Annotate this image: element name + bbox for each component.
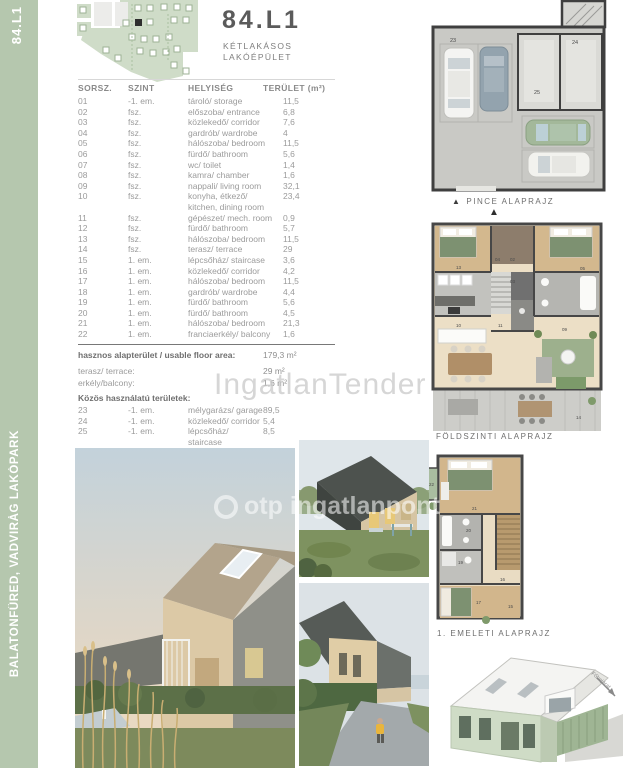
ground-floor-plan: 02 03 04 05 09 10 11 13 14 [430, 221, 605, 433]
row-level: fsz. [128, 138, 188, 149]
row-level: fsz. [128, 181, 188, 192]
page-title: 84.L1 [222, 6, 301, 35]
table-row: 04fsz.gardrób/ wardrobe4 [78, 128, 335, 139]
row-level: -1. em. [128, 405, 188, 416]
row-room: wc/ toilet [188, 160, 283, 171]
row-room: hálószoba/ bedroom [188, 138, 283, 149]
row-area: 4 [283, 128, 335, 139]
svg-text:03: 03 [510, 279, 516, 284]
table-row: 14fsz.terasz/ terrace29 [78, 244, 335, 255]
row-area: 23,4 [283, 191, 335, 212]
row-area: 32,1 [283, 181, 335, 192]
svg-text:11: 11 [498, 323, 503, 328]
row-area: 5,4 [263, 416, 280, 427]
row-room: gardrób/ wardrobe [188, 287, 283, 298]
table-row: 05fsz.hálószoba/ bedroom11,5 [78, 138, 335, 149]
car-green-horizontal [526, 120, 590, 145]
row-level: -1. em. [128, 416, 188, 427]
col-szint: SZINT [128, 83, 188, 93]
row-no: 21 [78, 318, 128, 329]
svg-text:09: 09 [562, 327, 568, 332]
row-room: lépcsőház/ staircase [188, 255, 283, 266]
row-no: 24 [78, 416, 128, 427]
row-level: 1. em. [128, 318, 188, 329]
common-table: 23-1. em.mélygarázs/ garage89,524-1. em.… [78, 405, 280, 447]
photo-street-rendering [299, 583, 429, 766]
table-row: 171. em.hálószoba/ bedroom11,5 [78, 276, 335, 287]
summary-balcony: erkély/balcony: 1,6 m² [78, 378, 335, 388]
row-area: 1,6 [283, 170, 335, 181]
table-row: 06fsz.fürdő/ bathroom5,6 [78, 149, 335, 160]
row-area: 1,6 [283, 329, 335, 340]
svg-text:13: 13 [456, 265, 462, 270]
svg-text:05: 05 [580, 266, 586, 271]
row-area: 11,5 [283, 96, 335, 107]
row-room: tároló/ storage [188, 96, 283, 107]
row-no: 13 [78, 234, 128, 245]
row-no: 23 [78, 405, 128, 416]
row-level: 1. em. [128, 287, 188, 298]
row-area: 1,4 [283, 160, 335, 171]
row-no: 20 [78, 308, 128, 319]
svg-text:10: 10 [456, 323, 462, 328]
row-area: 8,5 [263, 426, 280, 447]
page-subtitle: KÉTLAKÁSOS LAKÓÉPÜLET [223, 41, 292, 63]
row-room: hálószoba/ bedroom [188, 234, 283, 245]
svg-text:17: 17 [476, 600, 482, 605]
row-level: fsz. [128, 128, 188, 139]
row-level: fsz. [128, 170, 188, 181]
row-level: fsz. [128, 223, 188, 234]
row-room: közlekedő/ corridor [188, 266, 283, 277]
table-row: 151. em.lépcsőház/ staircase3,6 [78, 255, 335, 266]
row-room: konyha, étkező/kitchen, dining room [188, 191, 283, 212]
row-no: 04 [78, 128, 128, 139]
row-no: 22 [78, 329, 128, 340]
row-no: 17 [78, 276, 128, 287]
summary-balcony-value: 1,6 m² [263, 378, 335, 388]
table-row: 221. em.franciaerkély/ balcony1,6 [78, 329, 335, 340]
row-room: fürdő/ bathroom [188, 297, 283, 308]
row-no: 01 [78, 96, 128, 107]
row-level: fsz. [128, 191, 188, 212]
row-area: 11,5 [283, 234, 335, 245]
row-room: gardrób/ wardrobe [188, 128, 283, 139]
table-row: 12fsz.fürdő/ bathroom5,7 [78, 223, 335, 234]
table-row: 23-1. em.mélygarázs/ garage89,5 [78, 405, 280, 416]
subtitle-line2: LAKÓÉPÜLET [223, 52, 292, 63]
row-room: hálószoba/ bedroom [188, 318, 283, 329]
row-area: 5,6 [283, 297, 335, 308]
row-area: 29 [283, 244, 335, 255]
summary-usable: hasznos alapterület / usable floor area:… [78, 350, 335, 360]
basement-floor-plan: 23 24 25 [428, 0, 608, 194]
row-room: fürdő/ bathroom [188, 149, 283, 160]
row-area: 5,6 [283, 149, 335, 160]
site-plan [73, 0, 198, 85]
row-room: gépészet/ mech. room [188, 213, 283, 224]
row-room-line2: kitchen, dining room [188, 202, 283, 213]
row-no: 03 [78, 117, 128, 128]
row-level: 1. em. [128, 276, 188, 287]
row-area: 21,3 [283, 318, 335, 329]
row-no: 08 [78, 170, 128, 181]
row-no: 11 [78, 213, 128, 224]
row-level: 1. em. [128, 308, 188, 319]
site-plan-highlight-building [135, 19, 142, 26]
table-row: 07fsz.wc/ toilet1,4 [78, 160, 335, 171]
row-room: közlekedő/ corridor [188, 416, 263, 427]
car-white-vertical [444, 48, 474, 118]
row-area: 4,5 [283, 308, 335, 319]
row-level: fsz. [128, 107, 188, 118]
table-row: 25-1. em.lépcsőház/ staircase8,5 [78, 426, 280, 447]
photo-house-rendering [75, 448, 295, 768]
row-room: mélygarázs/ garage [188, 405, 263, 416]
photo-garden-rendering [299, 440, 429, 577]
table-row: 161. em.közlekedő/ corridor4,2 [78, 266, 335, 277]
row-room: fürdő/ bathroom [188, 223, 283, 234]
svg-text:22: 22 [429, 482, 435, 487]
row-room: közlekedő/ corridor [188, 117, 283, 128]
car-slate-vertical [480, 47, 508, 111]
row-no: 18 [78, 287, 128, 298]
table-row: 10fsz.konyha, étkező/kitchen, dining roo… [78, 191, 335, 212]
row-room: fürdő/ bathroom [188, 308, 283, 319]
summary-usable-value: 179,3 m² [263, 350, 335, 360]
row-area: 3,6 [283, 255, 335, 266]
row-no: 05 [78, 138, 128, 149]
row-area: 4,2 [283, 266, 335, 277]
table-row: 09fsz.nappali/ living room32,1 [78, 181, 335, 192]
sidebar-project-name: BALATONFÜRED, VADVIRÁG LAKÓPARK [9, 430, 21, 677]
north-arrow-icon: ▲ [452, 197, 461, 206]
table-row: 13fsz.hálószoba/ bedroom11,5 [78, 234, 335, 245]
row-room: terasz/ terrace [188, 244, 283, 255]
svg-text:14: 14 [576, 415, 582, 420]
table-row: 02fsz.előszoba/ entrance6,8 [78, 107, 335, 118]
summary-terrace-value: 29 m² [263, 366, 335, 376]
table-bottom-rule [78, 344, 335, 345]
svg-text:02: 02 [510, 257, 516, 262]
table-row: 201. em.fürdő/ bathroom4,5 [78, 308, 335, 319]
table-top-rule [78, 79, 335, 80]
datasheet-page: 84.L1 BALATONFÜRED, VADVIRÁG LAKÓPARK 84… [0, 0, 643, 768]
table-row: 01-1. em.tároló/ storage11,5 [78, 96, 335, 107]
row-no: 10 [78, 191, 128, 212]
basement-plan-caption: ▲PINCE ALAPRAJZ [452, 197, 554, 206]
svg-text:04: 04 [495, 257, 501, 262]
row-level: fsz. [128, 149, 188, 160]
svg-text:21: 21 [472, 506, 478, 511]
ground-floor-plan-caption: FÖLDSZINTI ALAPRAJZ [436, 432, 553, 441]
table-row: 181. em.gardrób/ wardrobe4,4 [78, 287, 335, 298]
row-level: 1. em. [128, 266, 188, 277]
row-room: nappali/ living room [188, 181, 283, 192]
summary-balcony-label: erkély/balcony: [78, 378, 263, 388]
svg-text:20: 20 [466, 528, 472, 533]
svg-text:19: 19 [458, 560, 464, 565]
child-figure [376, 718, 384, 743]
row-no: 06 [78, 149, 128, 160]
summary-usable-label: hasznos alapterület / usable floor area: [78, 350, 263, 360]
row-no: 19 [78, 297, 128, 308]
svg-text:23: 23 [450, 38, 456, 44]
car-white-horizontal [528, 152, 590, 177]
table-row: 11fsz.gépészet/ mech. room0,9 [78, 213, 335, 224]
row-level: -1. em. [128, 96, 188, 107]
row-area: 11,5 [283, 138, 335, 149]
row-area: 4,4 [283, 287, 335, 298]
svg-text:24: 24 [572, 40, 578, 46]
table-row: 24-1. em.közlekedő/ corridor5,4 [78, 416, 280, 427]
table-header: SORSZ. SZINT HELYISÉG TERÜLET (m²) [78, 83, 335, 93]
row-area: 5,7 [283, 223, 335, 234]
col-helyiseg: HELYISÉG [188, 83, 263, 93]
row-room: kamra/ chamber [188, 170, 283, 181]
row-room: hálószoba/ bedroom [188, 276, 283, 287]
north-arrow-icon: ▲ [489, 207, 499, 218]
row-level: 1. em. [128, 297, 188, 308]
row-no: 14 [78, 244, 128, 255]
row-no: 07 [78, 160, 128, 171]
row-level: -1. em. [128, 426, 188, 447]
row-no: 12 [78, 223, 128, 234]
svg-text:15: 15 [508, 604, 514, 609]
col-terulet: TERÜLET (m²) [263, 83, 335, 93]
row-no: 09 [78, 181, 128, 192]
summary-terrace: terasz/ terrace: 29 m² [78, 366, 335, 376]
table-row: 08fsz.kamra/ chamber1,6 [78, 170, 335, 181]
row-level: 1. em. [128, 255, 188, 266]
col-sorsz: SORSZ. [78, 83, 128, 93]
axonometric-house: Főbejárat [445, 644, 625, 766]
sidebar: 84.L1 BALATONFÜRED, VADVIRÁG LAKÓPARK [0, 0, 38, 768]
row-level: fsz. [128, 213, 188, 224]
row-area: 0,9 [283, 213, 335, 224]
row-no: 15 [78, 255, 128, 266]
first-floor-plan-caption: 1. EMELETI ALAPRAJZ [437, 629, 551, 638]
table-row: 211. em.hálószoba/ bedroom21,3 [78, 318, 335, 329]
row-area: 7,6 [283, 117, 335, 128]
svg-text:16: 16 [500, 577, 506, 582]
room-table: 01-1. em.tároló/ storage11,502fsz.előszo… [78, 96, 335, 340]
row-level: 1. em. [128, 329, 188, 340]
row-area: 11,5 [283, 276, 335, 287]
first-floor-plan: 15 16 17 19 20 21 22 [424, 452, 534, 626]
summary-terrace-label: terasz/ terrace: [78, 366, 263, 376]
row-level: fsz. [128, 244, 188, 255]
row-area: 89,5 [263, 405, 280, 416]
row-no: 02 [78, 107, 128, 118]
table-row: 191. em.fürdő/ bathroom5,6 [78, 297, 335, 308]
row-room: franciaerkély/ balcony [188, 329, 283, 340]
common-areas-title: Közös használatú területek: [78, 393, 190, 403]
subtitle-line1: KÉTLAKÁSOS [223, 41, 292, 52]
row-level: fsz. [128, 160, 188, 171]
sidebar-unit-number: 84.L1 [9, 6, 24, 44]
row-area: 6,8 [283, 107, 335, 118]
svg-text:25: 25 [534, 90, 540, 96]
row-level: fsz. [128, 117, 188, 128]
row-room: előszoba/ entrance [188, 107, 283, 118]
row-level: fsz. [128, 234, 188, 245]
table-row: 03fsz.közlekedő/ corridor7,6 [78, 117, 335, 128]
row-no: 16 [78, 266, 128, 277]
row-no: 25 [78, 426, 128, 447]
row-room: lépcsőház/ staircase [188, 426, 263, 447]
